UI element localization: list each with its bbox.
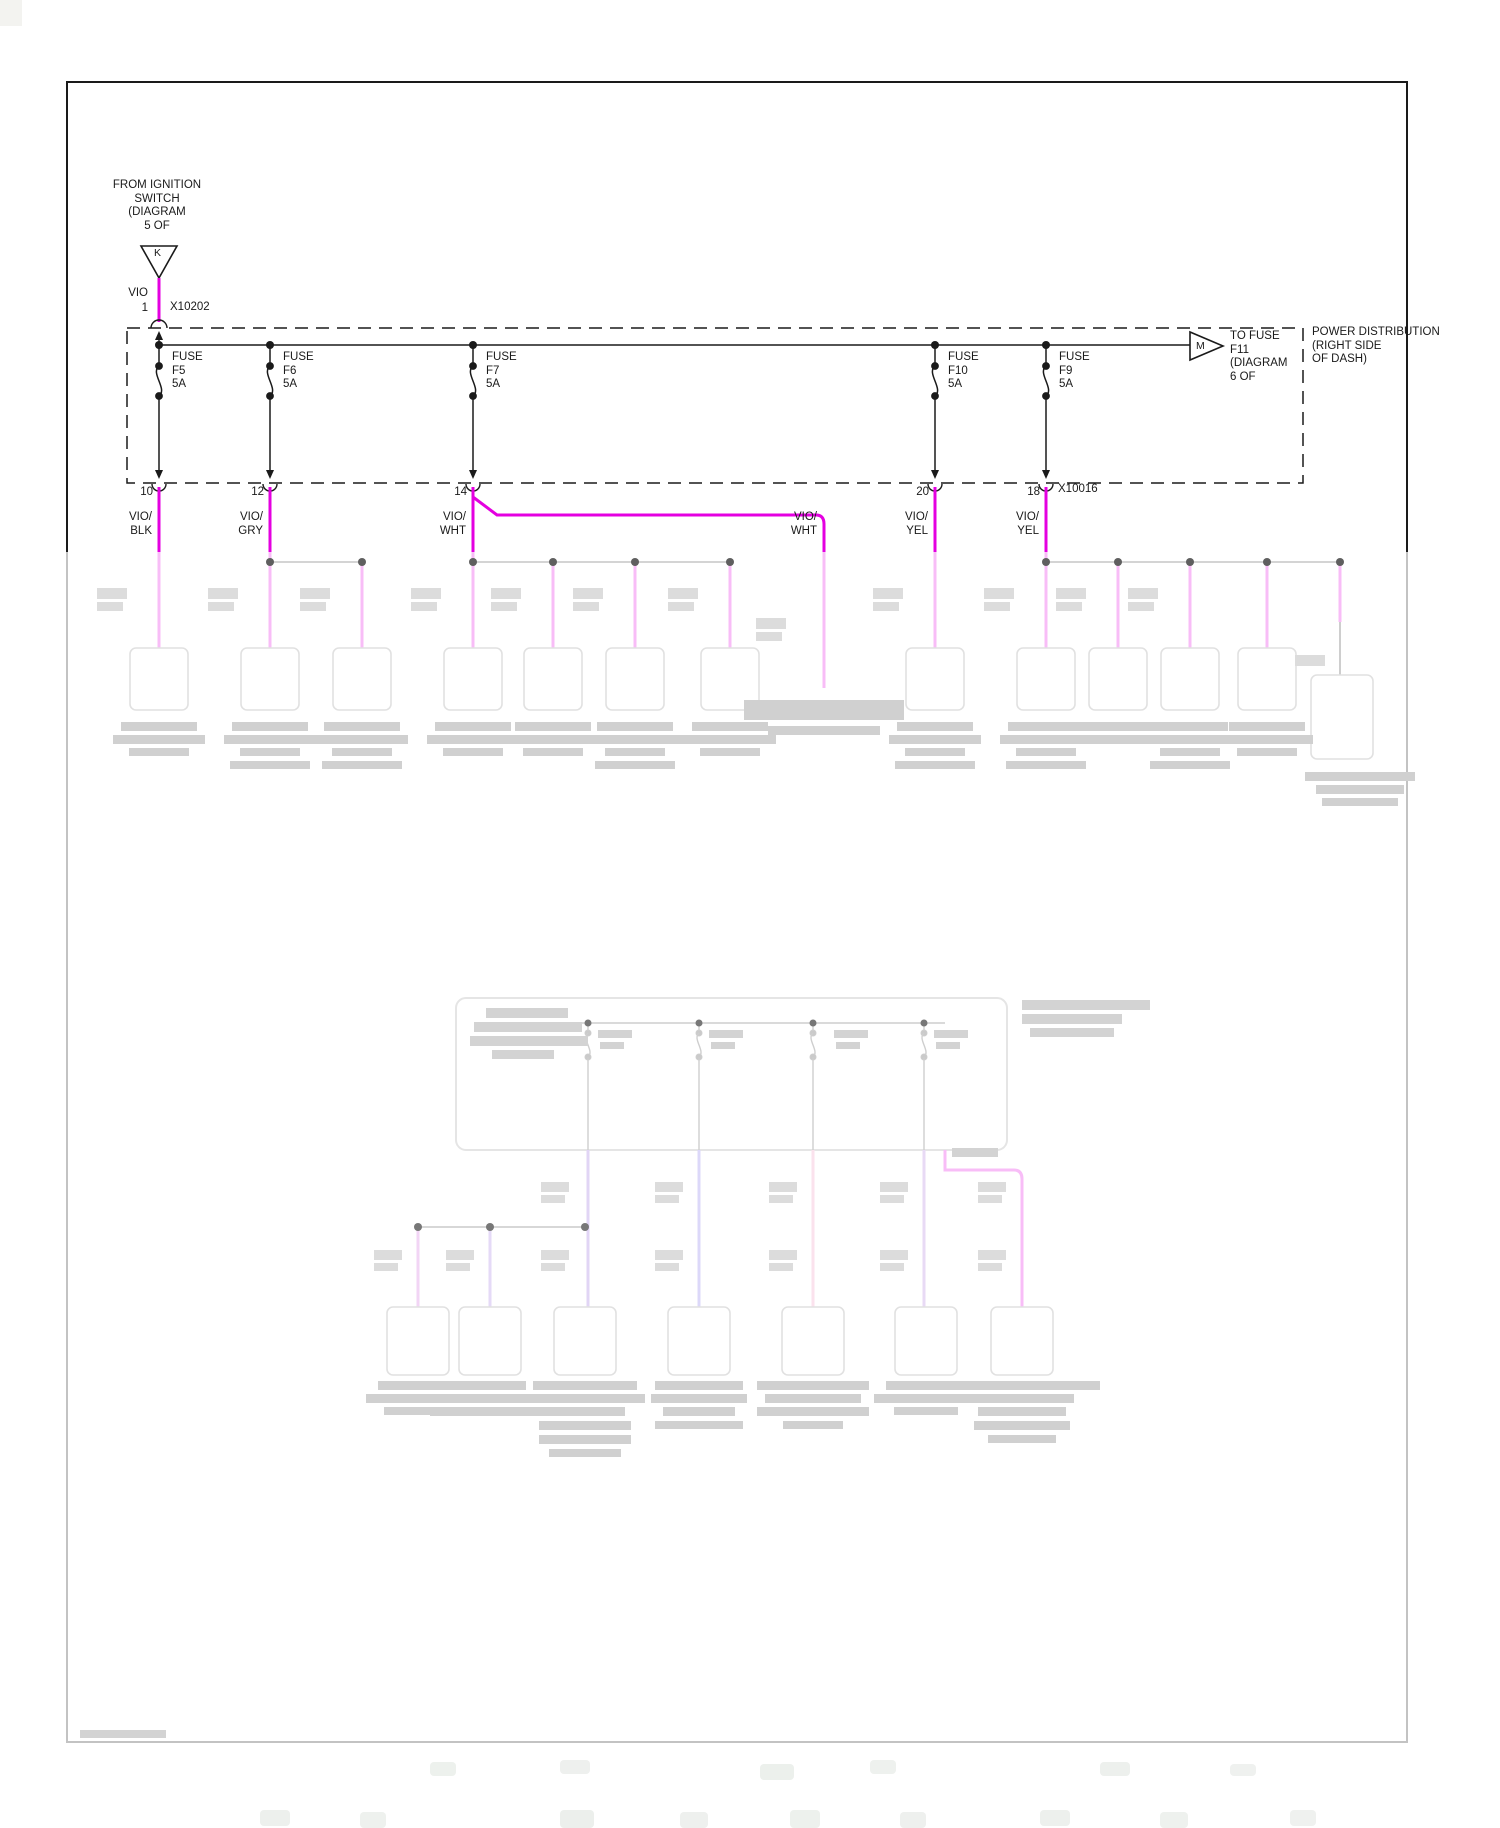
faded-junction-dots <box>0 0 1500 1828</box>
wiring-diagram-page: FROM IGNITION SWITCH (DIAGRAM 5 OF K VIO… <box>0 0 1500 1828</box>
